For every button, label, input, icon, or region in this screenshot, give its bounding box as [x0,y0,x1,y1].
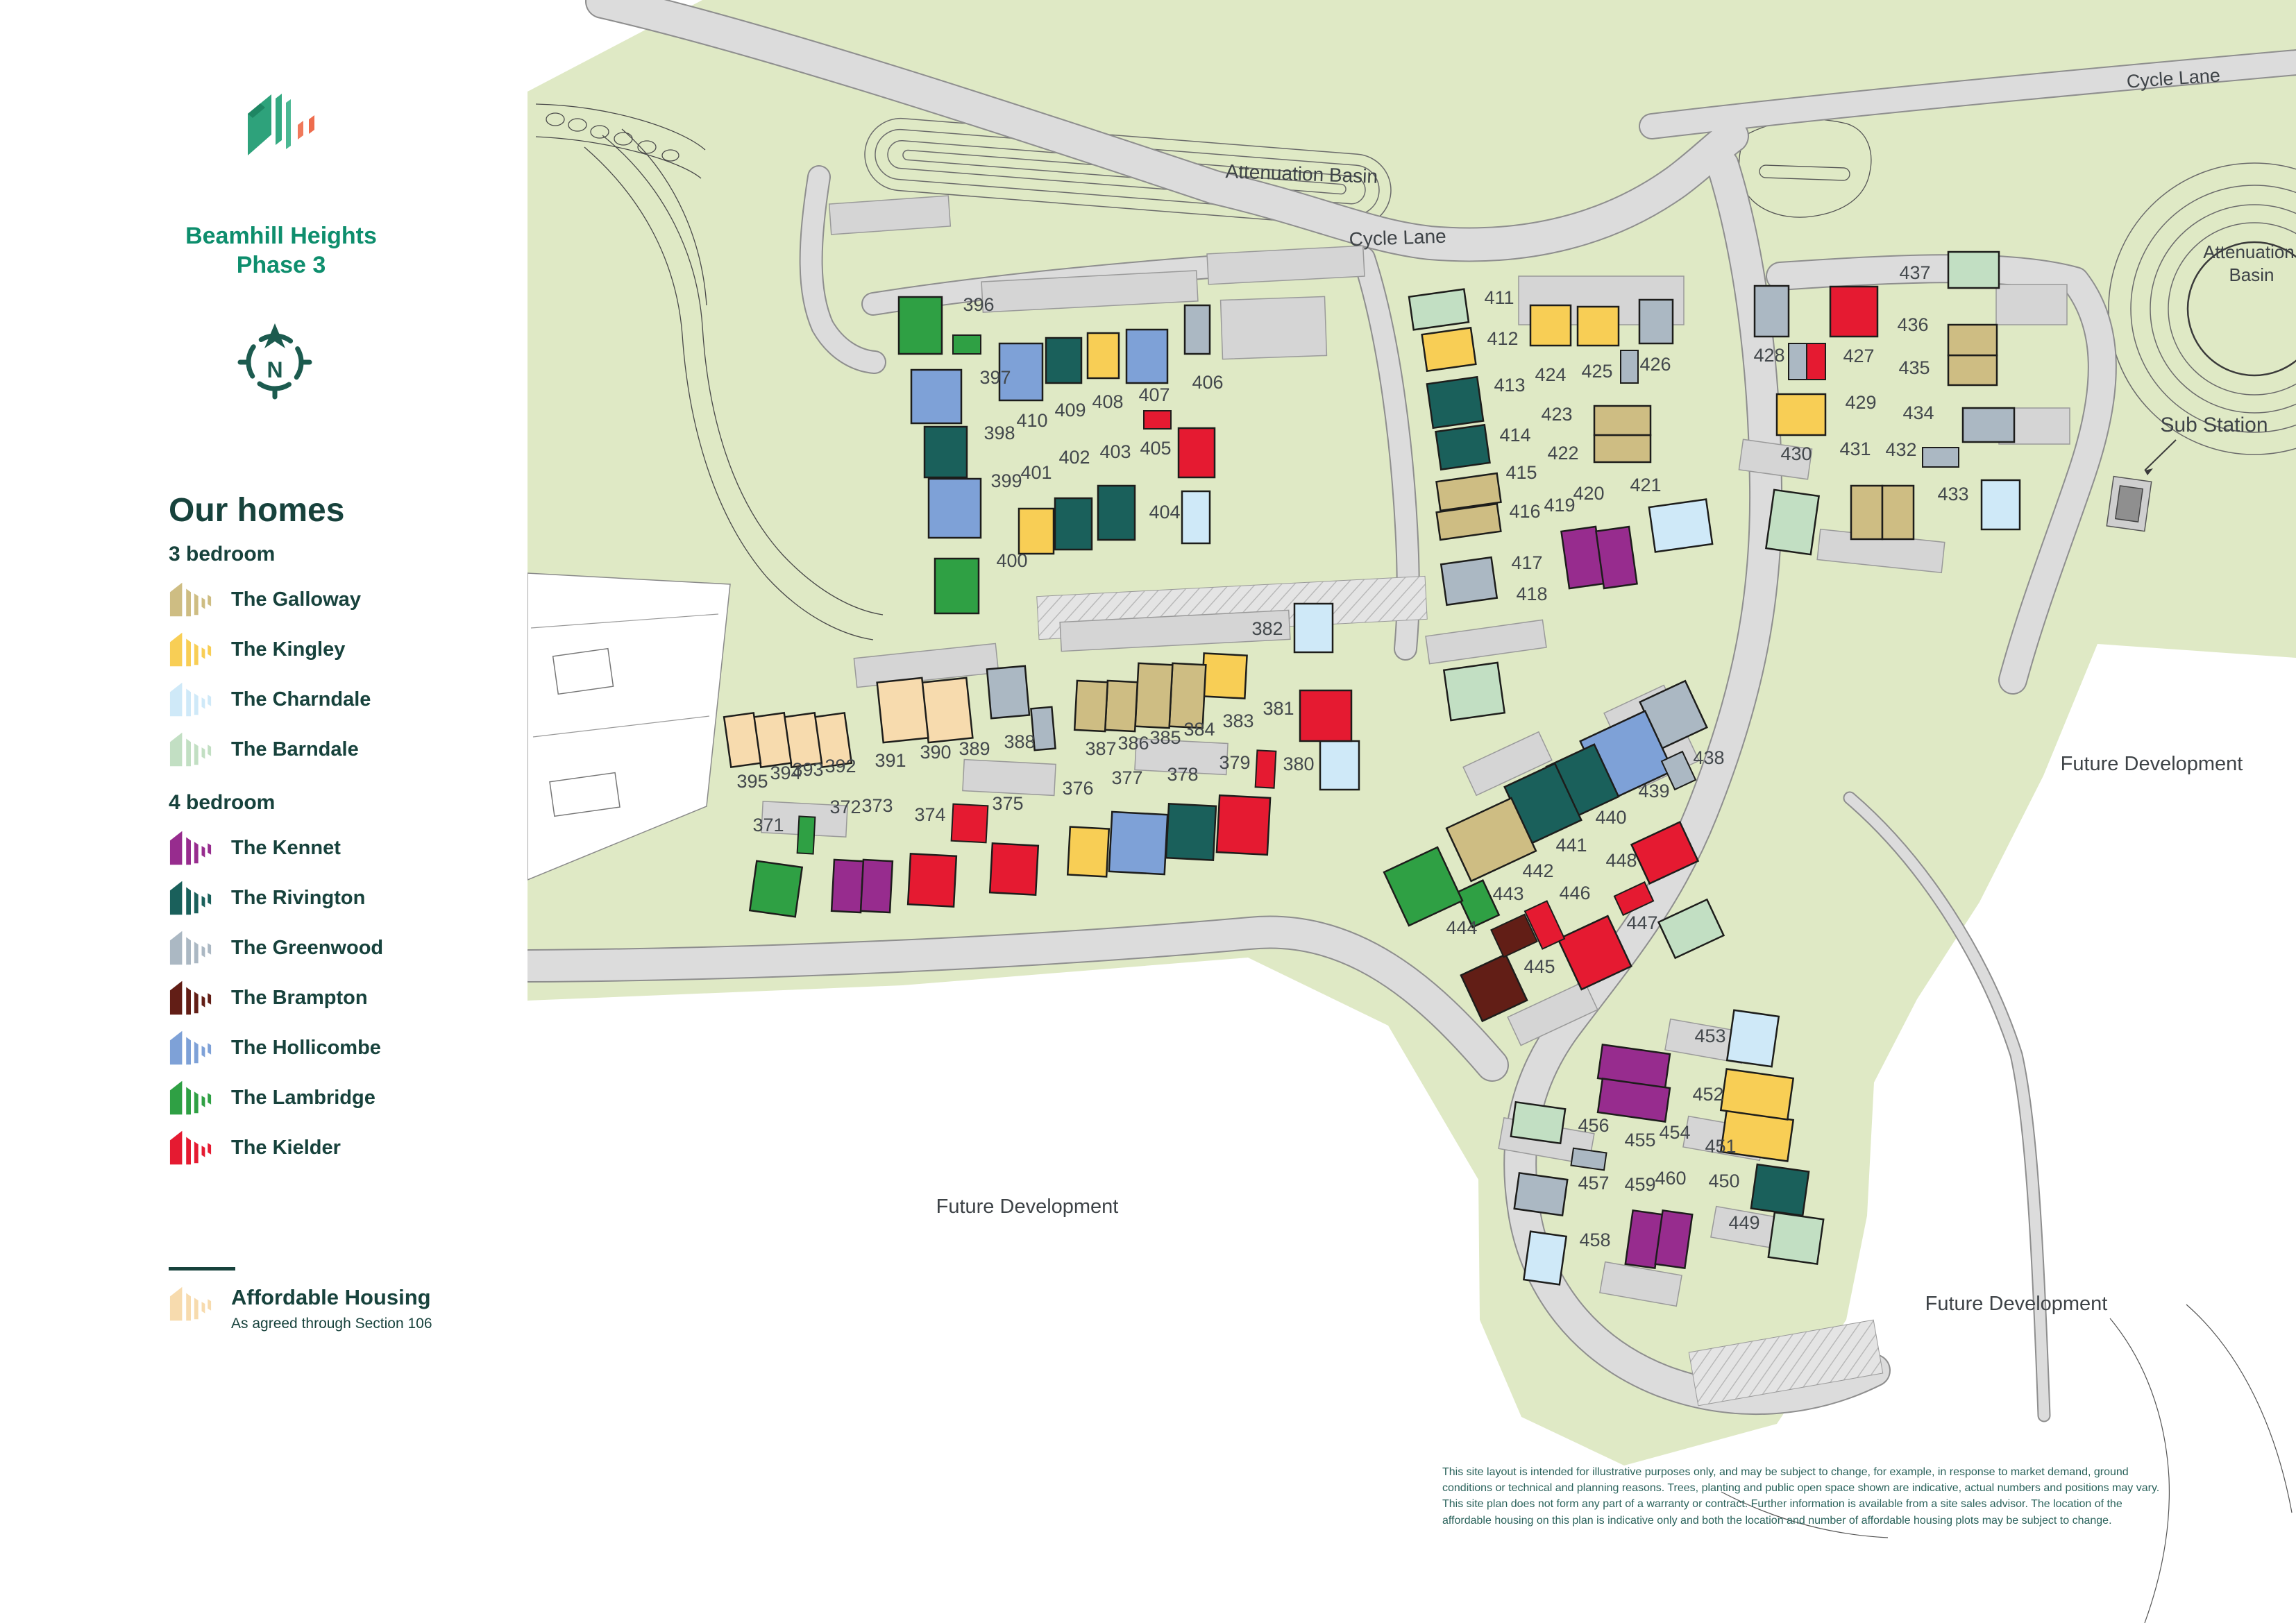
legend-item-label: The Hollicombe [231,1037,381,1060]
plot-413-house[interactable] [1427,377,1483,428]
plot-371-house[interactable] [750,861,802,917]
plot-437-house[interactable] [1948,252,1999,288]
outbuilding [1256,750,1276,788]
plot-391-house[interactable] [877,678,929,742]
legend-item-label: The Greenwood [231,937,383,960]
plot-413-number: 413 [1494,375,1525,396]
outbuilding [1144,411,1171,429]
plot-395-number: 395 [736,771,768,792]
legend-item-label: The Kennet [231,837,341,860]
plot-401-house[interactable] [1019,509,1054,554]
plot-424-house[interactable] [1530,305,1571,346]
plot-389-number: 389 [959,738,990,759]
plot-428-number: 428 [1753,345,1784,366]
kingley-home-icon [169,631,213,668]
map-label: Future Development [2061,753,2243,775]
affordable-housing-icon [169,1285,213,1323]
plot-405-house[interactable] [1179,428,1215,477]
plot-376-number: 376 [1062,778,1093,799]
plot-450-house[interactable] [1751,1164,1809,1216]
plot-417-number: 417 [1511,552,1542,573]
plot-449-house[interactable] [1769,1212,1823,1264]
legend-item-galloway: The Galloway [169,575,509,624]
legend-item-label: The Galloway [231,588,361,611]
sidebar: Beamhill HeightsPhase 3 N Our homes 3 be… [0,0,527,1623]
plot-454-number: 454 [1659,1122,1690,1143]
plot-433-number: 433 [1937,484,1968,504]
map-label: Cycle Lane [1349,226,1446,250]
plot-372-house[interactable] [832,860,863,912]
plot-390-house[interactable] [922,678,973,742]
plot-456-number: 456 [1578,1115,1609,1136]
legend-item-label: The Barndale [231,738,359,761]
legend-item-label: The Rivington [231,887,365,910]
plot-444-number: 444 [1446,917,1477,938]
plot-434-number: 434 [1902,402,1934,423]
plot-376-house[interactable] [1067,827,1109,877]
outbuilding [797,816,816,853]
plot-431-number: 431 [1839,439,1871,459]
plot-385-house[interactable] [1136,663,1173,728]
plot-371-number: 371 [752,815,784,835]
plot-383-house[interactable] [1201,653,1247,698]
legend-item-barndale: The Barndale [169,724,509,774]
legend-item-charndale: The Charndale [169,674,509,724]
plot-408-number: 408 [1092,391,1123,412]
plot-459-number: 459 [1624,1174,1655,1195]
plot-400-number: 400 [996,550,1027,571]
plot-397-house[interactable] [911,370,961,423]
rivington-home-icon [169,879,213,917]
plot-426-house[interactable] [1639,300,1673,343]
plot-437-number: 437 [1899,262,1930,283]
lambridge-home-icon [169,1079,213,1116]
plot-460-house[interactable] [1655,1210,1692,1268]
outbuilding [1923,448,1959,467]
plot-403-number: 403 [1099,441,1131,462]
plot-456-house[interactable] [1511,1102,1565,1144]
plot-407-number: 407 [1138,384,1170,405]
plot-382-house[interactable] [1294,604,1333,652]
plot-453-house[interactable] [1727,1010,1779,1067]
plot-375-number: 375 [992,793,1023,814]
plot-427-number: 427 [1843,346,1874,366]
compass-north-icon: N [233,318,316,407]
plot-387-number: 387 [1085,738,1116,759]
plot-379-house[interactable] [1217,795,1270,855]
plot-435-number: 435 [1898,357,1930,378]
charndale-home-icon [169,681,213,718]
plot-420-house[interactable] [1596,527,1637,588]
plot-418-house[interactable] [1444,663,1504,720]
plot-458-number: 458 [1579,1230,1610,1250]
plot-429-number: 429 [1845,392,1876,413]
plot-404-house[interactable] [1182,491,1210,543]
plot-411-number: 411 [1484,287,1514,308]
plot-392-number: 392 [825,756,856,776]
plot-424-number: 424 [1535,364,1566,385]
plot-447-number: 447 [1626,912,1657,933]
plot-397-number: 397 [979,367,1011,388]
plot-408-house[interactable] [1088,333,1119,378]
plot-442-number: 442 [1522,860,1553,881]
plot-412-number: 412 [1487,328,1518,349]
plot-449-number: 449 [1728,1212,1759,1233]
plot-403-house[interactable] [1098,486,1135,540]
plot-386-number: 386 [1117,733,1149,754]
legend-item-kingley: The Kingley [169,624,509,674]
legend-item-lambridge: The Lambridge [169,1073,509,1123]
plot-430-house[interactable] [1766,490,1818,554]
plot-423-number: 423 [1541,404,1572,425]
plot-453-number: 453 [1694,1026,1725,1046]
site-title-line1: Beamhill Heights [185,223,377,249]
plot-436-house[interactable] [1948,325,1997,355]
plot-452-number: 452 [1692,1084,1723,1105]
plot-450-number: 450 [1708,1171,1739,1191]
legend-divider [169,1267,235,1271]
plot-406-number: 406 [1192,372,1223,393]
outbuilding [1571,1148,1606,1170]
plot-396-number: 396 [963,294,994,315]
plot-409-number: 409 [1054,400,1086,420]
outbuilding [952,804,988,843]
plot-383-number: 383 [1222,711,1253,731]
plot-405-number: 405 [1140,438,1171,459]
plot-386-house[interactable] [1105,681,1138,731]
plot-448-number: 448 [1605,850,1637,871]
plot-378-house[interactable] [1166,804,1216,860]
plot-428-house[interactable] [1755,286,1789,337]
plot-427-house[interactable] [1830,287,1877,337]
plot-429-house[interactable] [1777,394,1825,435]
legend-group-heading: 3 bedroom [169,543,509,566]
greenwood-home-icon [169,929,213,967]
plot-426-number: 426 [1639,354,1671,375]
plot-377-house[interactable] [1109,812,1167,874]
map-label: Attenuation [2203,241,2295,262]
plot-425-number: 425 [1581,361,1612,382]
legend-item-label: The Charndale [231,688,371,711]
plot-390-number: 390 [920,742,951,763]
legend-title: Our homes [169,491,344,529]
plot-433-house[interactable] [1982,480,2020,529]
plot-436-number: 436 [1897,314,1928,335]
plot-401-number: 401 [1020,462,1052,483]
map-label: Future Development [936,1196,1119,1218]
outbuilding [1807,343,1825,380]
legend-item-hollicombe: The Hollicombe [169,1023,509,1073]
plot-402-house[interactable] [1055,498,1092,550]
plot-441-number: 441 [1555,835,1587,856]
plot-421-number: 421 [1630,475,1661,495]
plot-457-number: 457 [1578,1173,1609,1193]
plot-402-number: 402 [1058,447,1090,468]
plot-435-house[interactable] [1948,355,1997,385]
plot-385-number: 385 [1149,727,1181,748]
map-label: Basin [2229,264,2274,285]
legend-item-brampton: The Brampton [169,973,509,1023]
plot-420-number: 420 [1573,483,1604,504]
legend-item-label: The Kingley [231,638,345,661]
plot-407-house[interactable] [1126,330,1167,383]
plot-418-number: 418 [1516,584,1547,604]
legend-group-heading: 4 bedroom [169,791,509,815]
plot-460-number: 460 [1655,1168,1686,1189]
plot-443-number: 443 [1492,883,1523,904]
existing-building [553,649,614,695]
plot-381-number: 381 [1263,698,1294,719]
plot-388-house[interactable] [987,666,1029,719]
plot-395-house[interactable] [724,713,761,767]
plot-458-house[interactable] [1523,1232,1566,1285]
plot-446-number: 446 [1559,883,1590,903]
galloway-home-icon [169,581,213,618]
page: 3713723733743753763773783793803813823833… [0,0,2296,1623]
outbuilding [953,335,981,354]
plot-387-house[interactable] [1074,681,1108,731]
plot-430-number: 430 [1780,443,1812,464]
svg-text:N: N [267,357,282,382]
plot-374-number: 374 [914,804,945,825]
legend-item-rivington: The Rivington [169,873,509,923]
plot-432-number: 432 [1885,439,1916,460]
plot-439-number: 439 [1638,781,1669,801]
kennet-home-icon [169,829,213,867]
barndale-home-icon [169,731,213,768]
plot-425-house[interactable] [1578,307,1619,346]
plot-414-number: 414 [1499,425,1530,445]
driveway [1221,296,1327,359]
plot-388-number: 388 [1004,731,1035,752]
plot-414-house[interactable] [1436,425,1490,469]
plot-410-number: 410 [1016,410,1047,431]
legend-item-affordable: Affordable Housing As agreed through Sec… [169,1285,432,1332]
legend-item-kennet: The Kennet [169,823,509,873]
plot-421-house[interactable] [1649,500,1712,552]
kielder-home-icon [169,1129,213,1166]
plot-382-number: 382 [1251,618,1283,639]
plot-422-number: 422 [1547,443,1578,464]
plot-398-house[interactable] [925,427,967,477]
plot-380-number: 380 [1283,754,1314,774]
legend-item-label: The Brampton [231,987,368,1010]
plot-396-house[interactable] [899,297,942,354]
plot-380-house[interactable] [1320,741,1359,790]
legend-item-label: The Lambridge [231,1087,375,1110]
plot-378-number: 378 [1167,764,1198,785]
legend-item-label: The Kielder [231,1137,341,1159]
site-title-line2: Phase 3 [237,252,326,278]
plot-431-house[interactable] [1851,486,1882,539]
driveway [1996,284,2067,325]
plot-373-house[interactable] [861,860,893,912]
plot-373-number: 373 [861,795,893,816]
plot-384-number: 384 [1183,719,1215,740]
plot-391-number: 391 [875,750,906,771]
legend-item-kielder: The Kielder [169,1123,509,1173]
plot-381-house[interactable] [1300,690,1351,741]
driveway [963,760,1056,796]
plot-377-number: 377 [1111,767,1142,788]
plot-422-house[interactable] [1594,435,1651,462]
plot-394-number: 394 [770,763,801,783]
plot-440-number: 440 [1595,807,1626,828]
affordable-housing-label: Affordable Housing [231,1285,432,1310]
plot-432-house[interactable] [1882,486,1914,539]
hollicombe-home-icon [169,1029,213,1067]
plot-375-house[interactable] [990,843,1038,894]
plot-398-number: 398 [984,423,1015,443]
plot-417-house[interactable] [1441,557,1497,605]
brand-logo-icon [239,89,320,171]
affordable-housing-sublabel: As agreed through Section 106 [231,1316,432,1332]
plot-374-house[interactable] [908,853,956,906]
plot-452-house[interactable] [1721,1069,1793,1120]
plot-411-house[interactable] [1409,289,1469,330]
plot-400-house[interactable] [935,559,979,613]
plot-455-number: 455 [1624,1130,1655,1150]
plot-412-house[interactable] [1422,328,1476,371]
plot-406-house[interactable] [1185,305,1210,354]
plot-457-house[interactable] [1514,1173,1568,1215]
map-label: Future Development [1925,1293,2108,1315]
plot-438-number: 438 [1693,747,1724,768]
map-label: Sub Station [2160,414,2268,436]
outbuilding [1789,343,1807,380]
plot-451-number: 451 [1705,1136,1736,1157]
plot-419-number: 419 [1544,495,1575,516]
plot-404-number: 404 [1149,502,1180,522]
plot-434-house[interactable] [1963,408,2014,442]
disclaimer-text: This site layout is intended for illustr… [1442,1464,2168,1529]
plot-399-house[interactable] [929,479,981,538]
plot-409-house[interactable] [1046,338,1081,383]
legend: 3 bedroomThe GallowayThe KingleyThe Char… [169,526,509,1173]
plot-445-number: 445 [1523,956,1555,977]
plot-423-house[interactable] [1594,406,1651,435]
plot-399-number: 399 [990,470,1022,491]
plot-372-number: 372 [829,797,861,817]
site-title: Beamhill HeightsPhase 3 [118,221,444,280]
plot-379-number: 379 [1219,752,1250,773]
outbuilding [1621,350,1638,383]
plot-415-number: 415 [1505,462,1537,483]
brampton-home-icon [169,979,213,1017]
plot-416-number: 416 [1509,501,1540,522]
legend-item-greenwood: The Greenwood [169,923,509,973]
